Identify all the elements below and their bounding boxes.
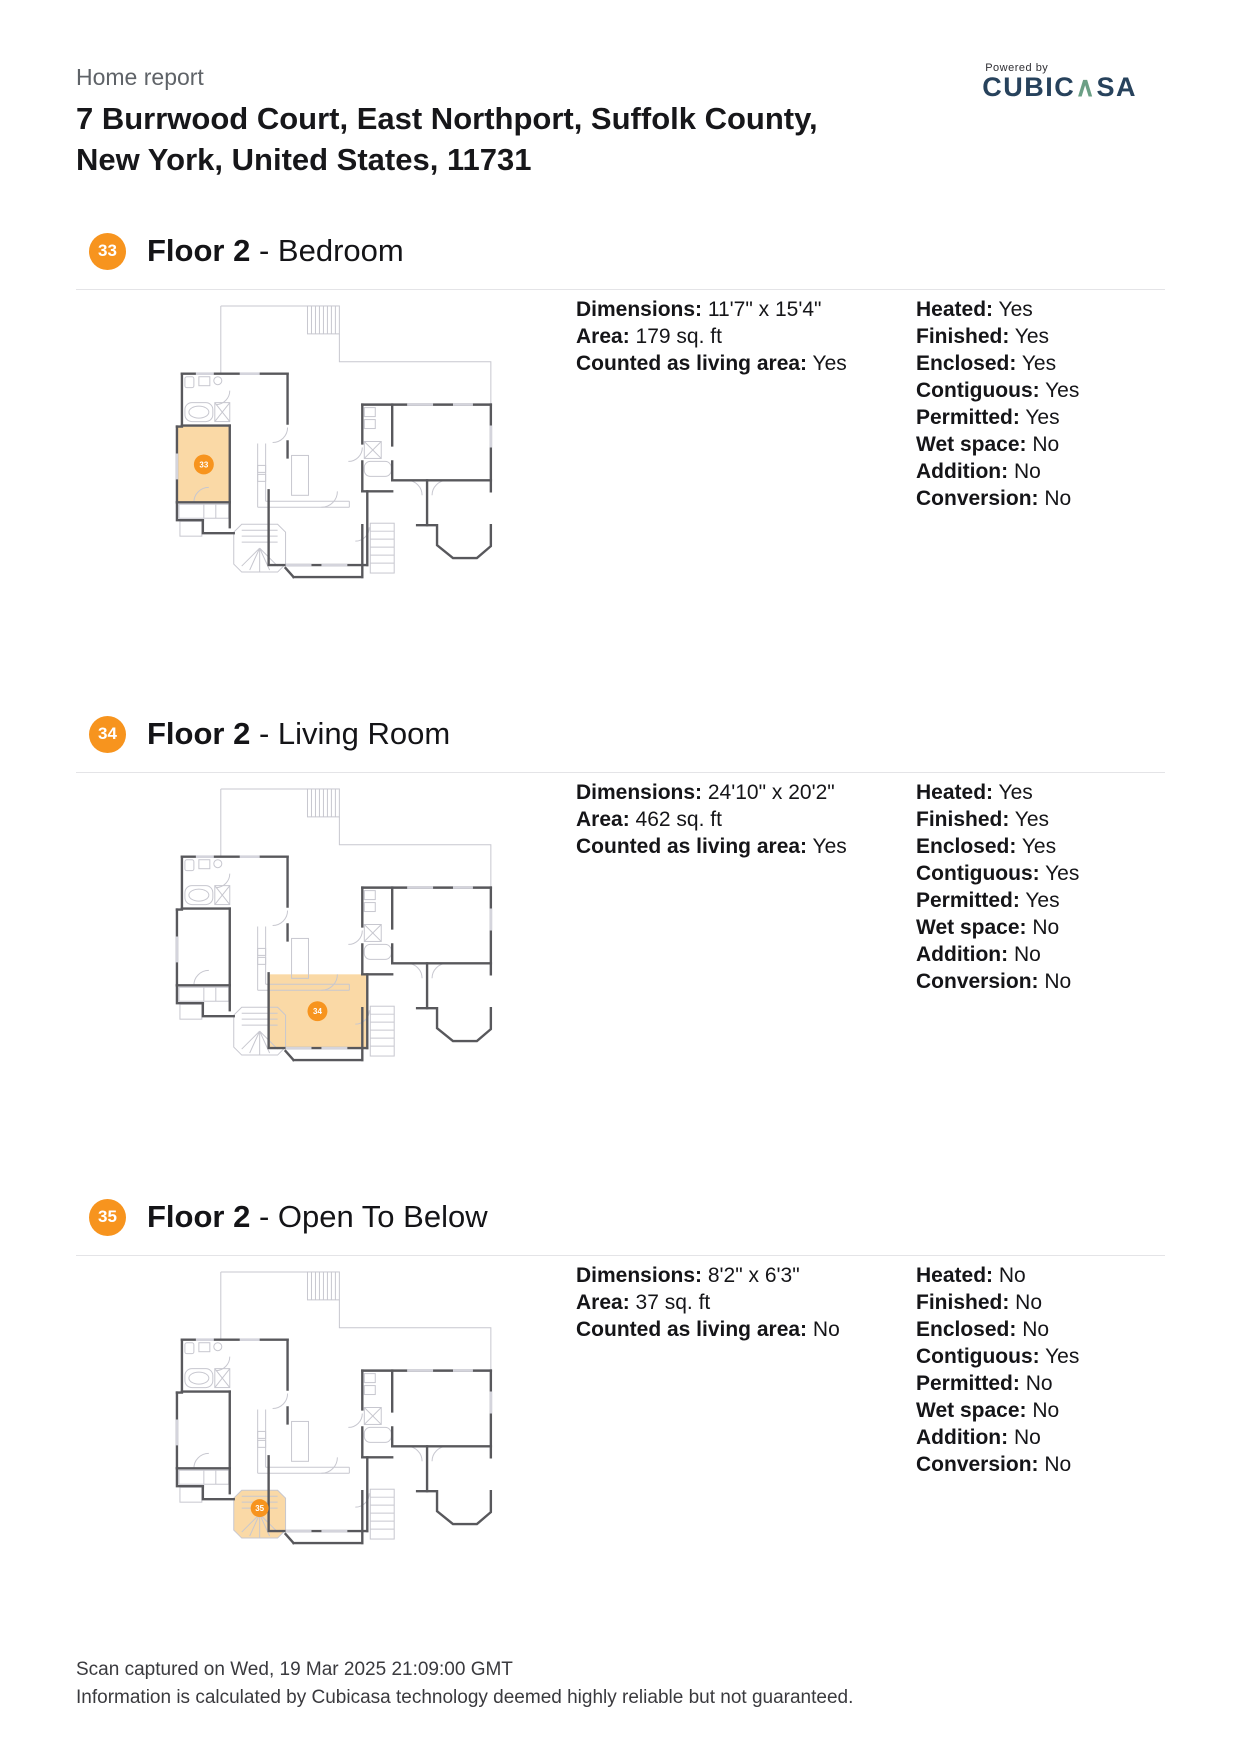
room-dimensions-column: Dimensions: 8'2" x 6'3"Area: 37 sq. ftCo… <box>576 1260 916 1552</box>
attribute-row: Enclosed: No <box>916 1316 1165 1343</box>
attribute-label: Addition: <box>916 1426 1008 1449</box>
dimension-value: 11'7" x 15'4" <box>702 298 821 321</box>
attribute-row: Heated: Yes <box>916 296 1165 323</box>
attribute-row: Contiguous: Yes <box>916 377 1165 404</box>
disclaimer-text: Information is calculated by Cubicasa te… <box>76 1684 853 1712</box>
dimension-label: Area: <box>576 325 630 348</box>
report-footer: Scan captured on Wed, 19 Mar 2025 21:09:… <box>76 1656 853 1712</box>
attribute-value: Yes <box>1020 406 1060 429</box>
room-dimensions-column: Dimensions: 11'7" x 15'4"Area: 179 sq. f… <box>576 294 916 586</box>
attribute-label: Addition: <box>916 460 1008 483</box>
attribute-row: Heated: No <box>916 1262 1165 1289</box>
attribute-value: No <box>1039 970 1072 993</box>
room-number-badge: 35 <box>89 1199 126 1236</box>
floor-label: Floor 2 <box>147 233 250 268</box>
floorplan-image: 33 <box>108 296 502 585</box>
attribute-row: Heated: Yes <box>916 779 1165 806</box>
brand-caret-icon: ∧ <box>1075 72 1096 102</box>
room-badge-number: 35 <box>255 1504 264 1513</box>
attribute-label: Heated: <box>916 1264 993 1287</box>
attribute-row: Wet space: No <box>916 914 1165 941</box>
attribute-label: Contiguous: <box>916 379 1040 402</box>
room-attributes-column: Heated: YesFinished: YesEnclosed: YesCon… <box>916 294 1165 586</box>
brand-wordmark: CUBIC∧SA <box>982 74 1137 101</box>
attribute-value: No <box>1008 460 1041 483</box>
attribute-label: Contiguous: <box>916 862 1040 885</box>
attribute-label: Conversion: <box>916 970 1039 993</box>
attribute-label: Enclosed: <box>916 352 1016 375</box>
attribute-value: No <box>1016 1318 1049 1341</box>
room-name: Bedroom <box>278 233 404 268</box>
attribute-row: Wet space: No <box>916 1397 1165 1424</box>
attribute-row: Conversion: No <box>916 485 1165 512</box>
attribute-label: Conversion: <box>916 1453 1039 1476</box>
floorplan-image: 35 <box>108 1262 502 1551</box>
room-number-badge: 33 <box>89 233 126 270</box>
attribute-value: Yes <box>993 781 1033 804</box>
report-type-label: Home report <box>76 60 818 91</box>
section-title: Floor 2 - Open To Below <box>147 1199 488 1235</box>
dimension-value: 462 sq. ft <box>630 808 722 831</box>
room-number-badge: 34 <box>89 716 126 753</box>
cubicasa-logo: Powered by CUBIC∧SA <box>982 60 1165 101</box>
brand-text-post: SA <box>1096 72 1137 102</box>
attribute-value: No <box>993 1264 1026 1287</box>
attribute-row: Permitted: Yes <box>916 887 1165 914</box>
address-line-2: New York, United States, 11731 <box>76 140 818 181</box>
attribute-label: Wet space: <box>916 433 1027 456</box>
dimension-value: 179 sq. ft <box>630 325 722 348</box>
attribute-value: Yes <box>1040 1345 1080 1368</box>
room-badge-layer: 33 <box>194 454 214 474</box>
attribute-value: No <box>1039 487 1072 510</box>
dimension-row: Counted as living area: Yes <box>576 350 916 377</box>
floorplan-image: 34 <box>108 779 502 1068</box>
attribute-value: No <box>1020 1372 1053 1395</box>
room-badge-layer: 35 <box>251 1499 269 1517</box>
dimension-label: Counted as living area: <box>576 1318 807 1341</box>
room-attributes-column: Heated: YesFinished: YesEnclosed: YesCon… <box>916 777 1165 1069</box>
attribute-label: Finished: <box>916 1291 1009 1314</box>
dimension-label: Counted as living area: <box>576 352 807 375</box>
attribute-row: Conversion: No <box>916 968 1165 995</box>
attribute-label: Heated: <box>916 298 993 321</box>
attribute-row: Contiguous: Yes <box>916 860 1165 887</box>
attribute-row: Finished: No <box>916 1289 1165 1316</box>
attribute-value: Yes <box>993 298 1033 321</box>
floorplan-walls <box>177 1340 491 1543</box>
address-line-1: 7 Burrwood Court, East Northport, Suffol… <box>76 99 818 140</box>
attribute-row: Wet space: No <box>916 431 1165 458</box>
dimension-label: Dimensions: <box>576 1264 702 1287</box>
attribute-label: Enclosed: <box>916 835 1016 858</box>
attribute-row: Addition: No <box>916 458 1165 485</box>
dimension-row: Area: 179 sq. ft <box>576 323 916 350</box>
attribute-label: Addition: <box>916 943 1008 966</box>
attribute-label: Permitted: <box>916 406 1020 429</box>
dimension-row: Dimensions: 8'2" x 6'3" <box>576 1262 916 1289</box>
section-title: Floor 2 - Bedroom <box>147 233 404 269</box>
attribute-value: Yes <box>1016 352 1056 375</box>
attribute-label: Finished: <box>916 808 1009 831</box>
attribute-row: Enclosed: Yes <box>916 833 1165 860</box>
room-dimensions-column: Dimensions: 24'10" x 20'2"Area: 462 sq. … <box>576 777 916 1069</box>
attribute-row: Permitted: Yes <box>916 404 1165 431</box>
attribute-row: Finished: Yes <box>916 323 1165 350</box>
attribute-row: Finished: Yes <box>916 806 1165 833</box>
dimension-row: Dimensions: 24'10" x 20'2" <box>576 779 916 806</box>
attribute-label: Finished: <box>916 325 1009 348</box>
dimension-row: Counted as living area: No <box>576 1316 916 1343</box>
attribute-value: No <box>1009 1291 1042 1314</box>
attribute-row: Contiguous: Yes <box>916 1343 1165 1370</box>
room-section: 34 Floor 2 - Living Room <box>76 716 1165 1069</box>
title-separator: - <box>250 1199 278 1234</box>
dimension-value: 37 sq. ft <box>630 1291 711 1314</box>
attribute-value: Yes <box>1020 889 1060 912</box>
attribute-row: Addition: No <box>916 1424 1165 1451</box>
attribute-label: Enclosed: <box>916 1318 1016 1341</box>
floor-label: Floor 2 <box>147 1199 250 1234</box>
attribute-value: No <box>1027 1399 1060 1422</box>
title-separator: - <box>250 716 278 751</box>
dimension-value: Yes <box>807 352 847 375</box>
attribute-value: Yes <box>1016 835 1056 858</box>
attribute-value: No <box>1008 943 1041 966</box>
dimension-value: No <box>807 1318 840 1341</box>
attribute-value: No <box>1008 1426 1041 1449</box>
attribute-row: Permitted: No <box>916 1370 1165 1397</box>
page-header: Home report 7 Burrwood Court, East North… <box>76 60 1165 181</box>
brand-text-pre: CUBIC <box>982 72 1075 102</box>
attribute-value: No <box>1039 1453 1072 1476</box>
attribute-label: Wet space: <box>916 1399 1027 1422</box>
dimension-label: Dimensions: <box>576 781 702 804</box>
title-separator: - <box>250 233 278 268</box>
scan-timestamp: Scan captured on Wed, 19 Mar 2025 21:09:… <box>76 1656 853 1684</box>
dimension-value: 8'2" x 6'3" <box>702 1264 800 1287</box>
attribute-value: No <box>1027 916 1060 939</box>
room-attributes-column: Heated: NoFinished: NoEnclosed: NoContig… <box>916 1260 1165 1552</box>
floor-label: Floor 2 <box>147 716 250 751</box>
dimension-label: Dimensions: <box>576 298 702 321</box>
attribute-row: Addition: No <box>916 941 1165 968</box>
dimension-label: Area: <box>576 808 630 831</box>
dimension-row: Counted as living area: Yes <box>576 833 916 860</box>
attribute-label: Contiguous: <box>916 1345 1040 1368</box>
dimension-label: Counted as living area: <box>576 835 807 858</box>
dimension-value: 24'10" x 20'2" <box>702 781 835 804</box>
room-section: 33 Floor 2 - Bedroom <box>76 233 1165 586</box>
attribute-value: Yes <box>1009 808 1049 831</box>
room-badge-number: 33 <box>199 460 208 469</box>
room-badge-number: 34 <box>313 1007 322 1016</box>
room-name: Living Room <box>278 716 450 751</box>
attribute-label: Conversion: <box>916 487 1039 510</box>
attribute-value: No <box>1027 433 1060 456</box>
property-address: 7 Burrwood Court, East Northport, Suffol… <box>76 99 818 181</box>
section-title: Floor 2 - Living Room <box>147 716 450 752</box>
dimension-label: Area: <box>576 1291 630 1314</box>
attribute-value: Yes <box>1009 325 1049 348</box>
dimension-value: Yes <box>807 835 847 858</box>
room-section: 35 Floor 2 - Open To Below <box>76 1199 1165 1552</box>
attribute-label: Wet space: <box>916 916 1027 939</box>
attribute-label: Heated: <box>916 781 993 804</box>
attribute-row: Conversion: No <box>916 1451 1165 1478</box>
attribute-value: Yes <box>1040 379 1080 402</box>
attribute-label: Permitted: <box>916 1372 1020 1395</box>
attribute-row: Enclosed: Yes <box>916 350 1165 377</box>
dimension-row: Area: 37 sq. ft <box>576 1289 916 1316</box>
attribute-label: Permitted: <box>916 889 1020 912</box>
attribute-value: Yes <box>1040 862 1080 885</box>
room-badge-layer: 34 <box>307 1001 327 1021</box>
room-name: Open To Below <box>278 1199 488 1234</box>
dimension-row: Dimensions: 11'7" x 15'4" <box>576 296 916 323</box>
dimension-row: Area: 462 sq. ft <box>576 806 916 833</box>
